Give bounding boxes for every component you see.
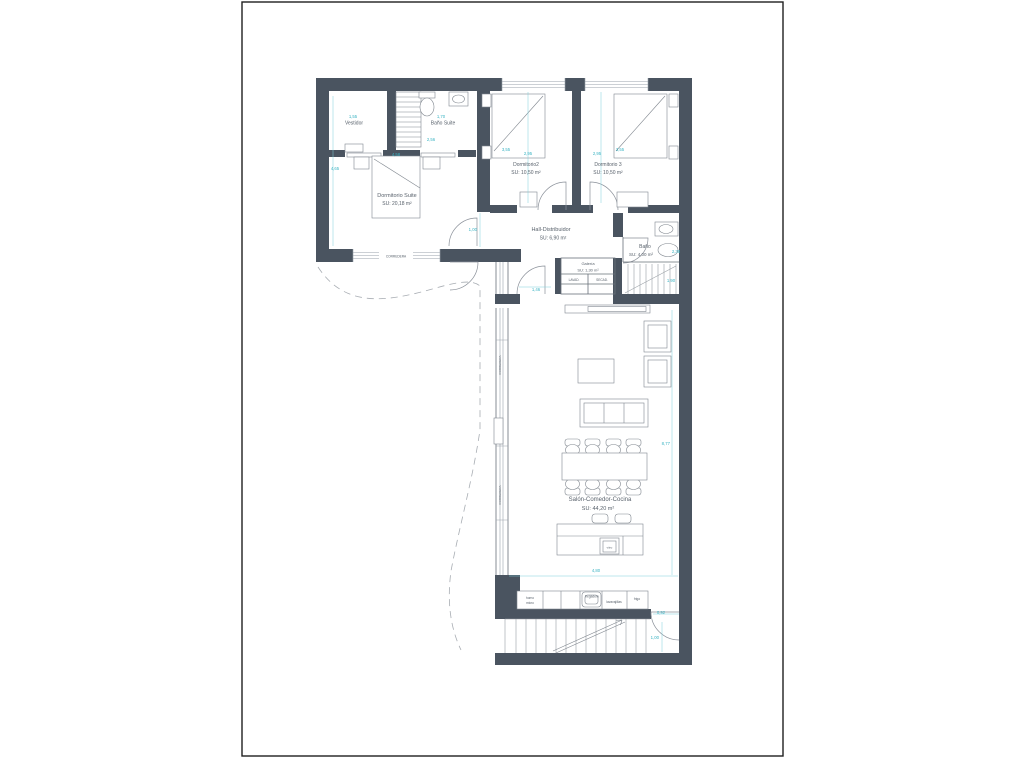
kitchen-island: vitro xyxy=(557,514,643,555)
sink-label: fregadero xyxy=(585,595,599,599)
dim-vestidor: 1,55 xyxy=(349,114,358,119)
dim-hall-w: 1,00 xyxy=(469,227,478,232)
kitchen-left-block xyxy=(495,575,520,610)
galeria-stairs-wall xyxy=(613,258,622,296)
bath-washbasin xyxy=(655,222,678,236)
oven-label-2: micro xyxy=(526,601,534,605)
suite-partition-a xyxy=(329,150,345,157)
window-label-a: CORREDERA xyxy=(498,355,502,374)
dishwasher-label: lavavajillas xyxy=(606,600,622,604)
wardrobe xyxy=(396,92,421,147)
washbasin xyxy=(449,92,468,106)
dining-table xyxy=(562,453,647,480)
exterior-stairs xyxy=(505,619,650,653)
living-furniture xyxy=(565,305,671,427)
bano-suite-fixtures xyxy=(419,92,468,116)
bano-area: SU: 4,00 m² xyxy=(629,252,654,257)
kitchen-counter: horno micro fregadero lavavajillas frigo xyxy=(517,591,648,609)
dorm3-door xyxy=(590,182,618,210)
dim-dorm3-w: 2,95 xyxy=(593,151,602,156)
dim-bano-suite-h: 2,56 xyxy=(427,137,436,142)
hall-label: Hall-Distribuidor xyxy=(531,227,570,233)
dim-suite-h: 4,65 xyxy=(331,166,340,171)
nightstand xyxy=(482,94,491,107)
oven-label-1: horno xyxy=(526,596,534,600)
suite-window-label: CORREDERA xyxy=(386,255,407,259)
bed xyxy=(372,156,420,218)
bano-label: Baño xyxy=(639,244,651,250)
dorm2-dorm3-partition xyxy=(572,91,581,212)
hall-area: SU: 6,90 m² xyxy=(540,236,567,242)
dorm3-label: Dormitorio 3 xyxy=(594,162,621,168)
right-wall xyxy=(679,78,692,665)
dorm2-label: Dormitorio2 xyxy=(513,162,539,168)
dorm-suite-label: Dormitorio Suite xyxy=(377,193,416,199)
nightstand xyxy=(423,157,440,169)
floor-plan-page: CORREDERA xyxy=(0,0,1024,760)
stair-arrow xyxy=(553,620,622,651)
washer-label: LAVAD. xyxy=(569,278,580,282)
nightstand xyxy=(669,94,678,107)
suite-bottom-wall-a xyxy=(316,249,353,262)
top-wall-left xyxy=(316,78,502,91)
salon-label: Salón-Comedor-Cocina xyxy=(569,497,632,503)
desk xyxy=(617,192,648,207)
window-mullion xyxy=(494,418,503,444)
dorm-suite-area: SU: 20,18 m² xyxy=(382,201,412,207)
terrace-door xyxy=(450,262,478,290)
nightstand xyxy=(354,157,369,169)
bottom-wall xyxy=(495,653,692,665)
nightstand xyxy=(482,146,491,159)
toilet xyxy=(420,98,434,116)
kitchen-bottom-wall xyxy=(495,609,651,619)
bath-left-wall xyxy=(613,213,623,237)
fridge-label: frigo xyxy=(634,597,640,601)
dryer-label: SECAD. xyxy=(596,278,608,282)
dim-bano: 2,38 xyxy=(672,249,681,254)
floor-plan-drawing: CORREDERA xyxy=(0,0,1024,760)
dim-dorm3-diag: 3,55 xyxy=(616,147,625,152)
galeria-left-wall xyxy=(555,258,561,294)
vestidor-label: Vestidor xyxy=(345,121,363,127)
hall-top-wall-a xyxy=(490,205,517,213)
salon-area: SU: 44,20 m² xyxy=(582,506,615,512)
galeria-area: SU: 1,30 m² xyxy=(577,268,599,273)
dim-hall-pass: 1,46 xyxy=(532,287,541,292)
suite-door xyxy=(449,218,477,246)
bed xyxy=(492,94,545,158)
hall-top-wall-b xyxy=(552,205,593,213)
living-top-wall-right xyxy=(613,294,692,304)
dim-salon-h: 8,77 xyxy=(662,441,671,446)
toilet-tank xyxy=(419,92,435,98)
dorm-suite-furniture xyxy=(354,156,440,218)
suite-bottom-wall-b xyxy=(440,249,521,262)
suite-partition-c xyxy=(458,150,476,157)
window-label-b: CORREDERA xyxy=(498,485,502,504)
terrace-dashed-boundary xyxy=(318,267,480,650)
dim-bano-suite-w: 1,70 xyxy=(437,114,446,119)
living-top-wall-left xyxy=(495,294,520,304)
desk xyxy=(520,192,537,207)
dorm3-area: SU: 10,50 m² xyxy=(593,170,623,176)
dining-set xyxy=(562,439,647,495)
hob-label: vitro xyxy=(607,546,613,550)
dim-entry-door: 0,92 xyxy=(657,610,666,615)
top-wall-pier xyxy=(565,78,585,91)
stool xyxy=(592,514,608,523)
galeria-label: Galería xyxy=(581,261,595,266)
dorm2-window xyxy=(502,78,565,91)
dim-dorm2-diag: 3,55 xyxy=(502,147,511,152)
suite-window: CORREDERA xyxy=(353,249,440,262)
dorm3-window xyxy=(585,78,648,91)
dim-suite-w: 4,58 xyxy=(392,152,401,157)
stool xyxy=(615,514,631,523)
dorm2-area: SU: 10,50 m² xyxy=(511,170,541,176)
dim-entry-landing: 1,00 xyxy=(651,635,660,640)
dim-stairs: 1,90 xyxy=(667,278,676,283)
nightstand xyxy=(669,146,678,159)
dorm2-furniture xyxy=(482,94,545,207)
bath-door xyxy=(623,238,648,263)
vestidor-bench xyxy=(345,144,363,152)
vestidor-bath-partition xyxy=(387,78,396,152)
dim-dorm2-w: 2,95 xyxy=(524,151,533,156)
living-window-strip xyxy=(494,262,508,575)
left-wall xyxy=(316,78,329,262)
dim-salon-w: 4,80 xyxy=(592,568,601,573)
coffee-table xyxy=(578,359,614,383)
bano-suite-label: Baño Suite xyxy=(431,121,456,127)
